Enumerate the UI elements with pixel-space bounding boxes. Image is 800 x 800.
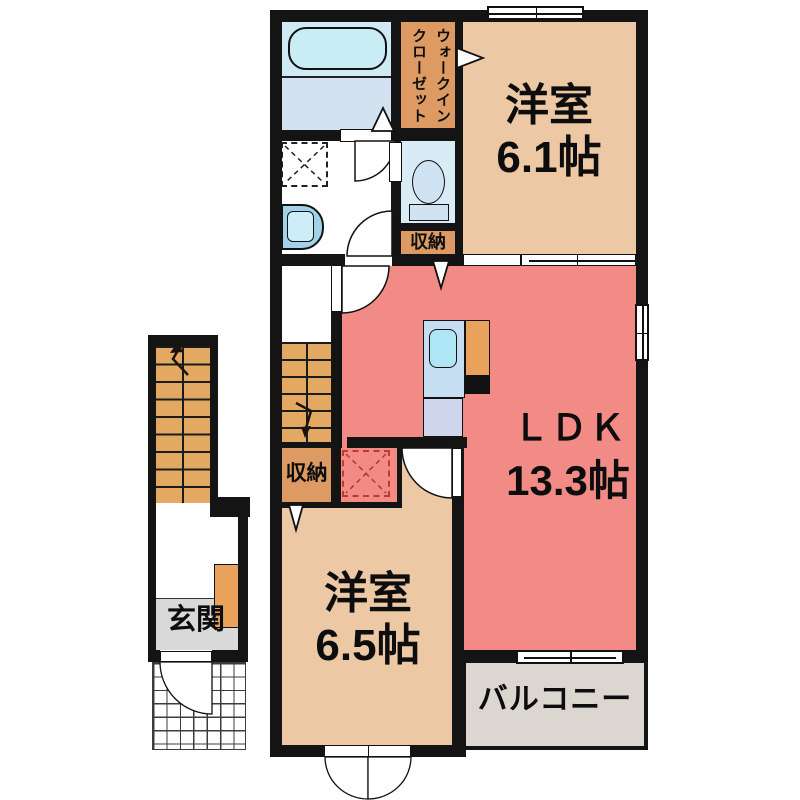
vanity-sink-basin <box>287 211 314 242</box>
bedroom2-size: 6.5帖 <box>294 620 442 672</box>
bedroom1-name: 洋室 <box>466 80 632 132</box>
annex-stairs-right <box>210 346 218 500</box>
wic-line2: クローゼット <box>406 26 430 126</box>
entrance-label: 玄関 <box>156 603 236 638</box>
wall-bath-bottom <box>282 130 340 141</box>
washroom-door-arc <box>347 211 392 256</box>
ldk-name-label: ＬＤＫ <box>498 406 642 449</box>
toilet-tank <box>409 204 449 221</box>
entrance-door-leaf <box>160 651 212 662</box>
refrigerator-space <box>465 320 490 376</box>
storage-upper-door-icon <box>430 258 452 290</box>
wall-storage-lower-right <box>331 448 341 508</box>
bedroom2-door-arc <box>402 448 452 498</box>
wall-storage-upper-bottom <box>392 254 463 266</box>
storage-lower-door-icon <box>285 502 305 532</box>
ldk-right-window <box>635 304 649 361</box>
wall-stairwell-ldk <box>331 310 342 448</box>
wic-door-icon <box>455 46 485 70</box>
bedroom2-bottom-window <box>324 745 411 757</box>
ldk-door-leaf <box>331 265 342 312</box>
wic-label: ウォークイン クローゼット <box>402 26 454 126</box>
wall-left <box>270 10 282 757</box>
balcony-rail-left <box>462 663 466 748</box>
ldk-door-arc <box>342 266 389 313</box>
balcony-label: バルコニー <box>470 682 640 718</box>
storage-upper-label: 収納 <box>401 232 455 254</box>
bedroom1-label: 洋室 6.1帖 <box>466 80 632 184</box>
bedroom1-size: 6.1帖 <box>466 132 632 184</box>
floor-plan: 洋室 6.1帖 ウォークイン クローゼット 収納 ＬＤＫ 13.3帖 収納 洋室… <box>0 0 800 800</box>
wall-toilet-bottom <box>401 223 455 231</box>
bathtub <box>288 27 387 70</box>
annex-wall-bottom-right <box>212 650 248 662</box>
annex-wall-left <box>148 335 156 662</box>
annex-wall-bottom-left <box>148 650 160 662</box>
toilet-bowl <box>412 160 445 204</box>
toilet-door-leaf <box>389 142 402 182</box>
stove-block <box>465 376 490 394</box>
ldk-dashed-equipment-space <box>342 450 390 497</box>
kitchen-sink <box>429 329 457 368</box>
wall-top <box>270 10 648 22</box>
bedroom2-door-leaf <box>452 448 462 497</box>
wall-wic-bottom <box>391 128 463 141</box>
balcony-sliding-window <box>516 650 624 664</box>
bedroom2-name: 洋室 <box>294 568 442 620</box>
wic-line1: ウォークイン <box>430 26 454 126</box>
wall-kitchen-bottom <box>347 437 467 448</box>
exterior-stairs-arrow <box>160 342 194 378</box>
entrance-door-arc <box>160 662 212 714</box>
wall-under-stairs <box>282 442 331 448</box>
bedroom1-ldk-sliding-door <box>463 254 636 266</box>
kitchen-counter-lower <box>423 398 463 437</box>
balcony-rail-bottom <box>462 746 648 750</box>
bedroom2-window-arc-right <box>368 757 411 799</box>
ldk-size-label: 13.3帖 <box>492 456 644 506</box>
bedroom1-top-window <box>487 6 584 20</box>
balcony-rail-right <box>644 663 648 748</box>
storage-lower-label: 収納 <box>282 461 331 486</box>
bedroom2-window-arc-left <box>325 757 368 799</box>
washing-machine-pan <box>281 142 328 187</box>
bedroom2-label: 洋室 6.5帖 <box>294 568 442 672</box>
interior-stairs-arrow <box>292 398 322 440</box>
annex-jut <box>210 497 250 517</box>
annex-wall-right <box>238 517 248 662</box>
bathroom-folding-door-icon <box>368 105 398 135</box>
